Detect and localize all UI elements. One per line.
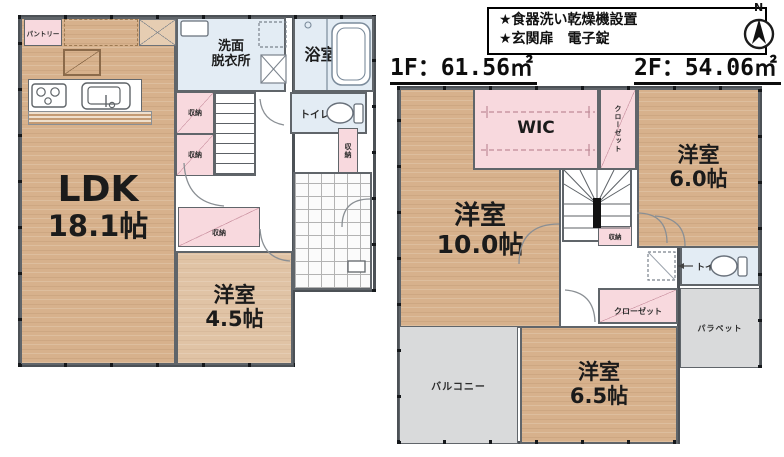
floor1-plan: LDK 18.1帖 パントリー 洗面 脱衣所 浴室 トイレ 収納 — [18, 15, 376, 367]
floor2-fixtures — [397, 86, 762, 444]
wall-hatch — [397, 440, 680, 444]
wall-hatch — [397, 86, 401, 444]
feature-line-entrance-lock: ★玄関扉 電子錠 — [499, 30, 757, 49]
floor2-plan: 洋室 10.0帖 WIC クローゼット 洋室 6.0帖 収納 トイレ クローゼッ… — [397, 86, 762, 444]
wall-hatch — [758, 86, 762, 368]
floor-plan-page: ★食器洗い乾燥機設置 ★玄関扉 電子錠 1F：61.56㎡ 2F：54.06㎡ … — [0, 0, 784, 457]
wall-hatch — [18, 15, 376, 19]
wall-hatch — [18, 15, 22, 367]
wall-hatch — [18, 363, 295, 367]
feature-line-dishwasher: ★食器洗い乾燥機設置 — [499, 11, 757, 30]
compass: N — [736, 2, 784, 54]
wall-hatch — [372, 15, 376, 292]
area-label-1f: 1F：61.56㎡ — [390, 48, 537, 85]
floor1-fixtures — [18, 15, 376, 367]
wall-hatch — [397, 86, 762, 90]
compass-north-label: N — [754, 1, 763, 14]
